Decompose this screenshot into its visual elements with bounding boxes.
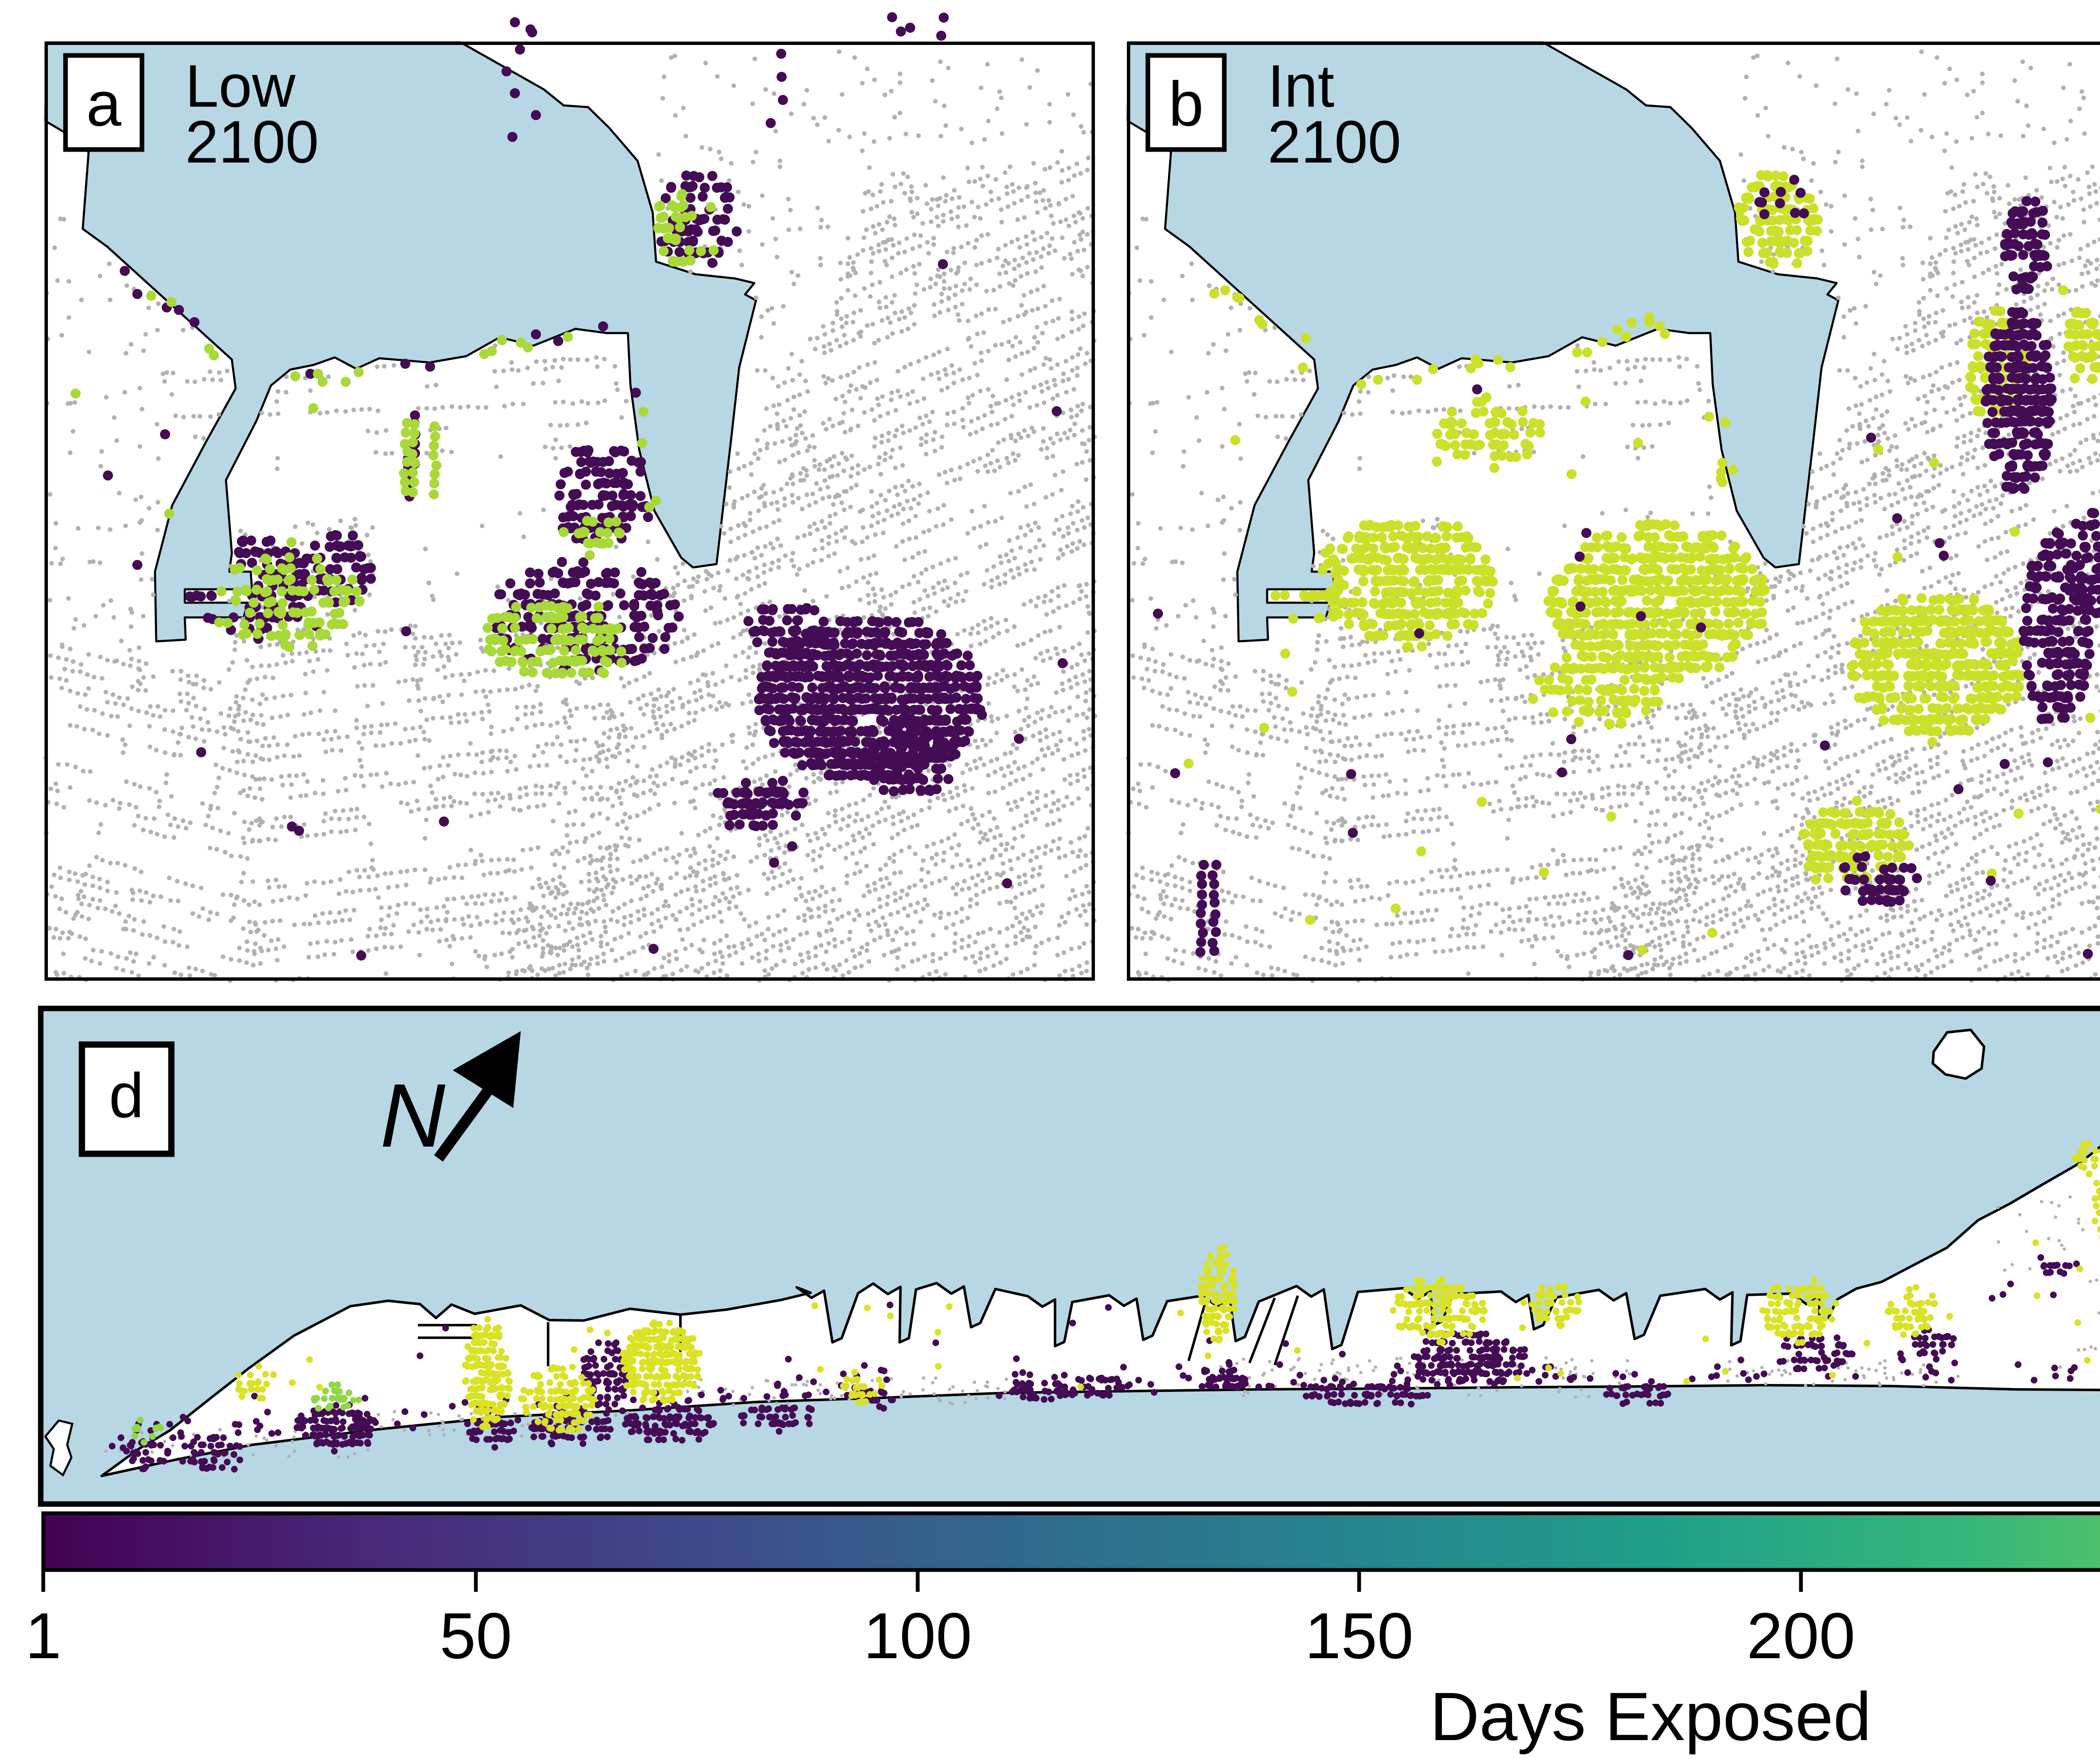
svg-text:100: 100: [864, 1599, 972, 1672]
svg-text:150: 150: [1305, 1599, 1414, 1672]
svg-text:N: N: [380, 1065, 446, 1166]
svg-text:Days Exposed: Days Exposed: [1430, 1678, 1872, 1755]
svg-text:b: b: [1168, 68, 1203, 139]
svg-text:200: 200: [1747, 1599, 1856, 1672]
svg-text:2100: 2100: [185, 109, 319, 176]
svg-text:d: d: [109, 1060, 144, 1131]
svg-text:50: 50: [440, 1599, 512, 1672]
svg-text:a: a: [86, 68, 121, 139]
svg-text:1: 1: [25, 1599, 61, 1672]
svg-text:2100: 2100: [1268, 109, 1401, 176]
